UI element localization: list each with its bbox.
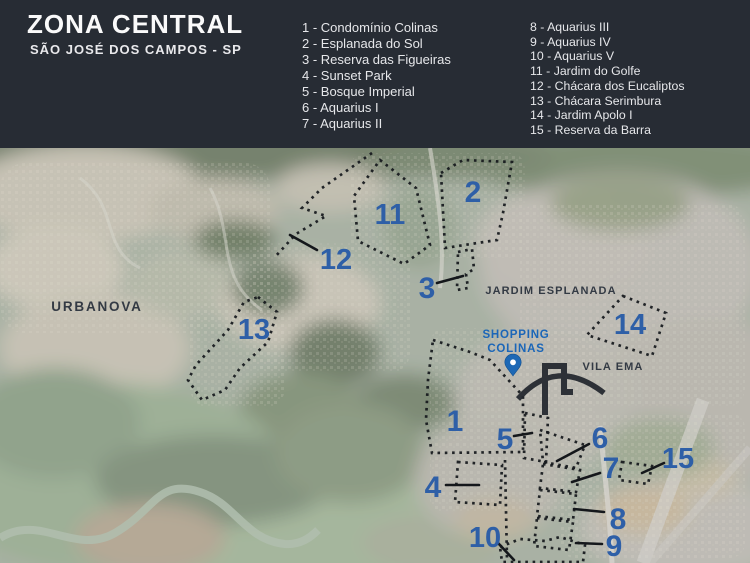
label-jardim-esplanada: JARDIM ESPLANADA	[485, 285, 616, 297]
legend-column-2: 8 - Aquarius III 9 - Aquarius IV 10 - Aq…	[530, 20, 684, 138]
map-marker-3: 3	[419, 272, 436, 305]
legend-item-7: 7 - Aquarius II	[302, 116, 451, 132]
map-marker-1: 1	[447, 405, 464, 438]
map-marker-2: 2	[465, 176, 482, 209]
legend-item-11: 11 - Jardim do Golfe	[530, 64, 684, 79]
map-marker-9: 9	[606, 530, 623, 563]
map-marker-5: 5	[497, 423, 514, 456]
map-marker-11: 11	[375, 199, 406, 231]
map-marker-12: 12	[320, 244, 352, 276]
label-shopping-line1: SHOPPING	[482, 329, 549, 341]
legend-item-9: 9 - Aquarius IV	[530, 35, 684, 50]
legend-item-4: 4 - Sunset Park	[302, 68, 451, 84]
label-vila-ema: VILA EMA	[583, 361, 644, 373]
map-marker-6: 6	[592, 422, 609, 455]
page-subtitle: SÃO JOSÉ DOS CAMPOS - SP	[30, 42, 242, 57]
map-marker-15: 15	[662, 443, 694, 475]
map-marker-10: 10	[469, 522, 501, 554]
satellite-map: 1 2 3 4 5 6 7 8 9 10 11 12 13 14 15 URBA…	[0, 148, 750, 563]
legend-item-1: 1 - Condomínio Colinas	[302, 20, 451, 36]
legend-item-5: 5 - Bosque Imperial	[302, 84, 451, 100]
legend-column-1: 1 - Condomínio Colinas 2 - Esplanada do …	[302, 20, 451, 132]
legend-item-3: 3 - Reserva das Figueiras	[302, 52, 451, 68]
header: ZONA CENTRAL SÃO JOSÉ DOS CAMPOS - SP 1 …	[0, 0, 750, 150]
map-marker-13: 13	[238, 314, 270, 346]
label-urbanova: URBANOVA	[51, 299, 142, 314]
map-marker-7: 7	[603, 452, 620, 485]
legend-item-2: 2 - Esplanada do Sol	[302, 36, 451, 52]
legend-item-10: 10 - Aquarius V	[530, 49, 684, 64]
legend-item-6: 6 - Aquarius I	[302, 100, 451, 116]
legend-item-15: 15 - Reserva da Barra	[530, 123, 684, 138]
map-marker-4: 4	[425, 471, 442, 504]
legend-item-13: 13 - Chácara Serimbura	[530, 94, 684, 109]
legend-item-14: 14 - Jardim Apolo I	[530, 108, 684, 123]
legend-item-12: 12 - Chácara dos Eucaliptos	[530, 79, 684, 94]
label-shopping-line2: COLINAS	[487, 343, 544, 355]
infographic: ZONA CENTRAL SÃO JOSÉ DOS CAMPOS - SP 1 …	[0, 0, 750, 563]
leader-line-9	[576, 543, 602, 544]
page-title: ZONA CENTRAL	[27, 9, 243, 40]
map-marker-14: 14	[614, 309, 646, 341]
legend-item-8: 8 - Aquarius III	[530, 20, 684, 35]
